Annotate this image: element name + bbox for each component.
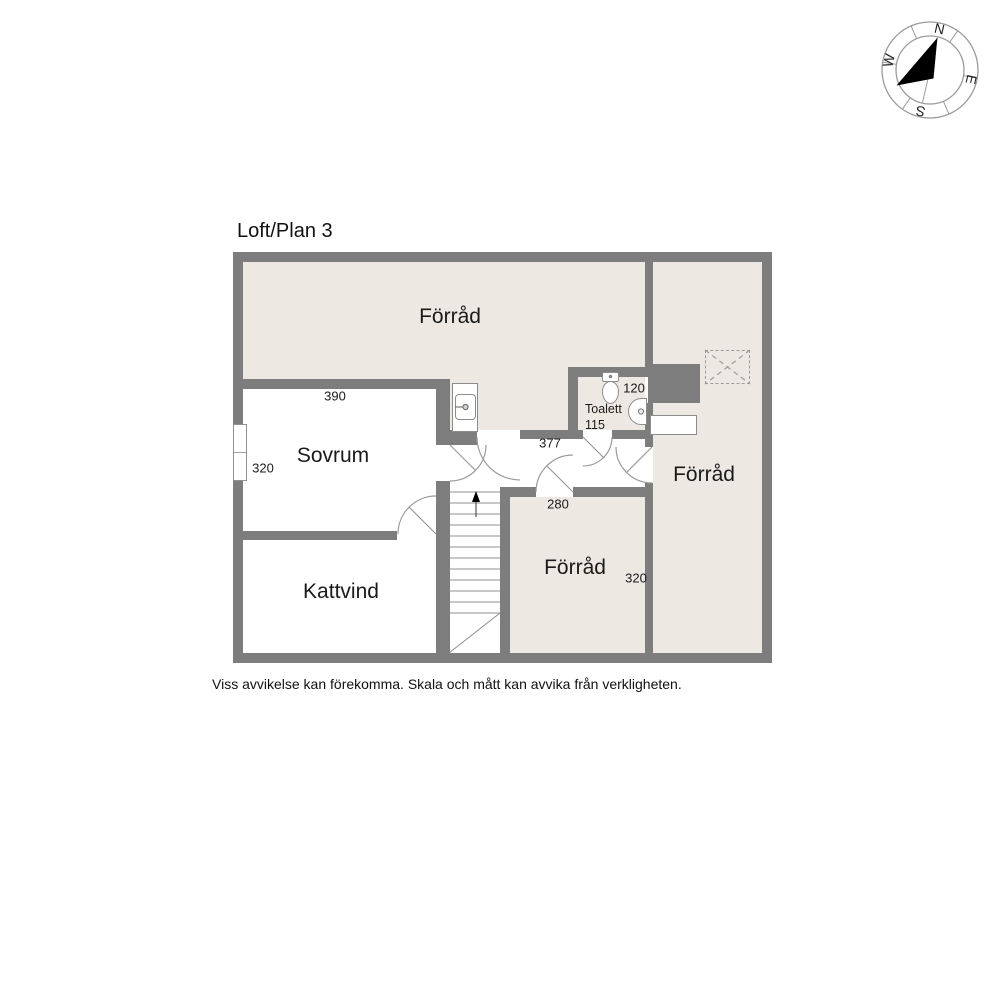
dim-hall-width: 377 (539, 436, 561, 451)
wall-forrad-bottom-top-b (573, 487, 645, 497)
dim-toalett-depth: 115 (585, 418, 605, 432)
wall-counter-corner (443, 430, 477, 445)
wall-right-room-c (645, 483, 653, 653)
room-label-forrad-top: Förråd (419, 305, 481, 329)
room-label-toalett: Toalett (585, 402, 622, 416)
page: { "title": "Loft/Plan 3", "disclaimer": … (0, 0, 992, 992)
wall-forrad-bottom-left (500, 487, 510, 653)
door-leaf-sovrum (450, 445, 475, 470)
dim-toalett-width: 120 (623, 381, 645, 396)
floorplan: Förråd Sovrum Kattvind Förråd Förråd Toa… (233, 252, 772, 663)
sink-icon (455, 394, 476, 420)
door-arc-kattvind (398, 496, 436, 534)
door-arc-toalett (583, 437, 612, 466)
wall-sovrum-right-lower (436, 481, 450, 653)
stairs (449, 492, 500, 653)
floor-forrad-right (652, 262, 762, 653)
wall-outer-top (233, 252, 772, 262)
window (233, 424, 247, 481)
chimney-block (648, 364, 700, 403)
wall-right-room-a (645, 262, 653, 367)
wall-forrad-bottom-top-a (500, 487, 536, 497)
compass-rose-icon: N E S W (875, 15, 985, 125)
wall-kattvind-top (243, 531, 397, 540)
bench-shelf (650, 415, 697, 435)
disclaimer-text: Viss avvikelse kan förekomma. Skala och … (212, 676, 682, 692)
page-title: Loft/Plan 3 (237, 220, 333, 243)
door-opening-forrad-right (645, 447, 653, 483)
wall-hall-top-b (612, 430, 646, 439)
room-label-kattvind: Kattvind (303, 580, 379, 604)
room-label-sovrum: Sovrum (297, 444, 369, 468)
room-label-forrad-right: Förråd (673, 463, 735, 487)
wall-outer-bottom (233, 653, 772, 663)
wall-toalett-left (568, 367, 578, 439)
door-opening-forrad-top (477, 430, 520, 439)
room-label-forrad-bottom: Förråd (544, 556, 606, 580)
wall-sovrum-top (243, 379, 450, 389)
door-opening-forrad-bottom (536, 487, 573, 497)
wall-outer-right (762, 252, 772, 663)
door-arc-forrad-top (477, 437, 520, 480)
door-leaf-toalett (583, 437, 604, 458)
skylight-icon (705, 350, 750, 384)
dim-forrad-bottom-depth: 320 (625, 571, 647, 586)
dim-sovrum-width: 390 (324, 389, 346, 404)
door-arc-sovrum (450, 445, 486, 481)
dim-forrad-bottom-width: 280 (547, 497, 569, 512)
stairs-up-arrow-icon (472, 491, 480, 517)
dim-sovrum-depth: 320 (252, 461, 274, 476)
door-leaf-kattvind (409, 507, 436, 534)
